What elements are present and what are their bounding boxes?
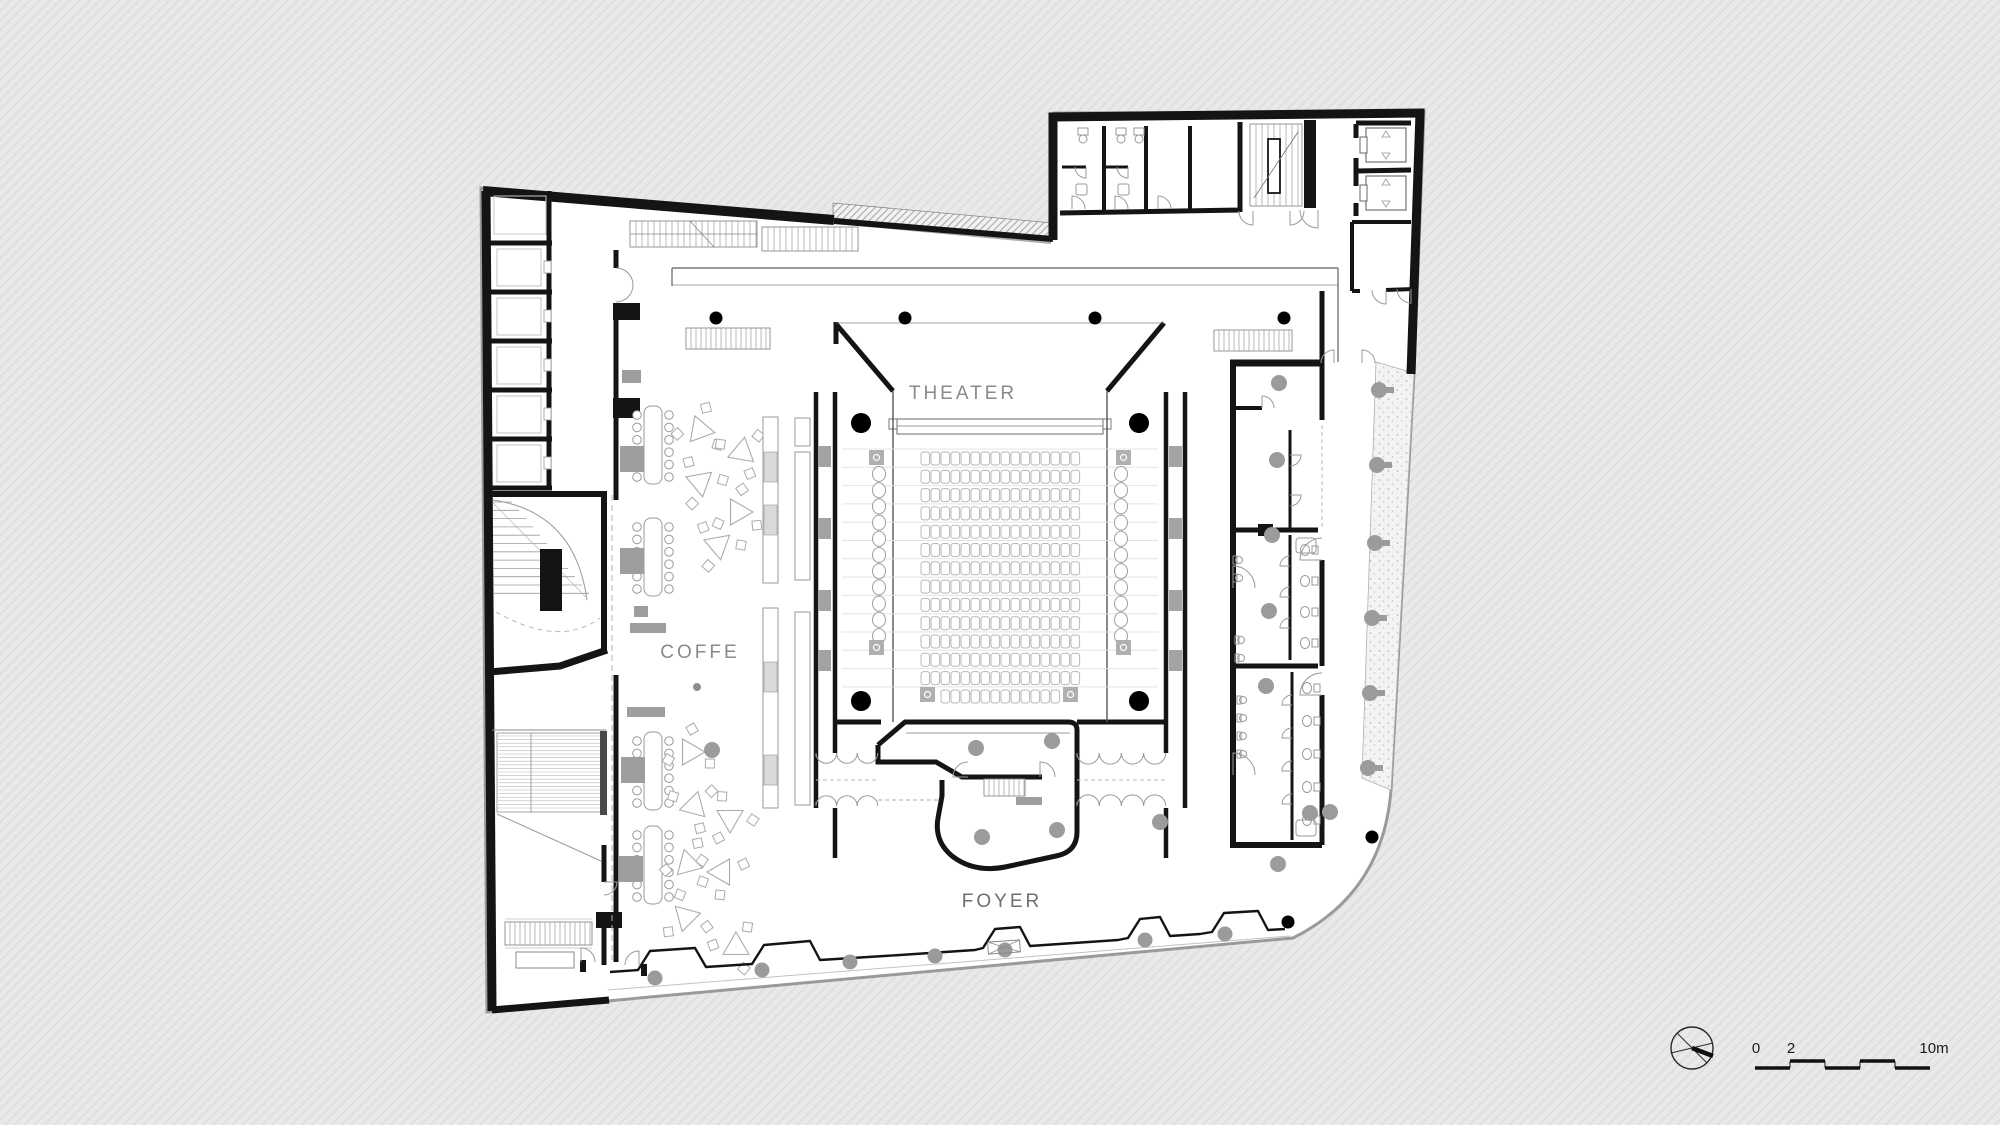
- scale-mid-label: 2: [1787, 1040, 1795, 1057]
- floor-plan-sheet: THEATER COFFE FOYER 0 2 10m: [0, 0, 2000, 1125]
- scale-end-label: 10m: [1919, 1040, 1948, 1057]
- theater-label: THEATER: [909, 383, 1017, 404]
- foyer-label: FOYER: [962, 891, 1042, 912]
- coffe-label: COFFE: [660, 642, 739, 663]
- scale-start-label: 0: [1752, 1040, 1760, 1057]
- floor-plan-drawing: THEATER COFFE FOYER 0 2 10m: [0, 0, 2000, 1125]
